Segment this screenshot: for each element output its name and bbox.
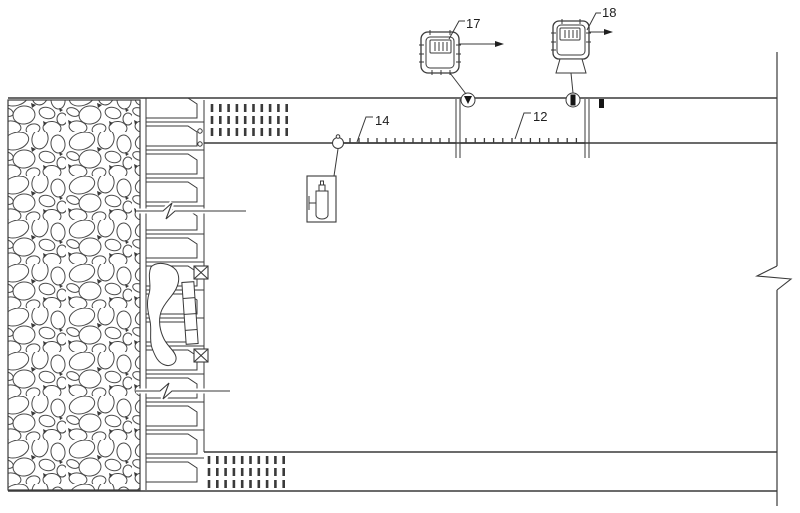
callout-18-label: 18 [602,5,616,20]
gas-cylinder-icon [309,181,328,219]
anchor-row-12 [460,138,585,143]
wireless-monitor-18 [551,13,613,93]
bolt-fence-top [212,104,287,138]
cross-brace-icon [194,349,208,362]
sensor-node-icon [333,135,344,149]
cross-brace-icon [194,266,208,279]
callout-17-label: 17 [466,16,480,31]
bolt-fence-bottom [209,456,284,488]
leader-line [449,21,465,39]
patent-figure: 17 18 14 12 [0,0,800,513]
probe-bar-icon [566,93,580,107]
anchor-row-14 [344,138,456,143]
device-base [556,59,586,73]
valve-triangle-icon [461,93,475,107]
device-display-icon [560,28,580,40]
figure-canvas: 17 18 14 12 [0,0,800,513]
connector-line [571,73,573,93]
callout-14-label: 14 [375,113,389,128]
arrow-icon [495,41,504,47]
leader-line [515,113,531,139]
gas-cylinder-box [307,149,338,222]
bolt-icon [198,129,202,133]
connector-line [450,73,466,94]
edge-break-icon [757,266,791,290]
callout-12-label: 12 [533,109,547,124]
bolt-icon [198,142,202,146]
marker-block-icon [599,99,604,108]
device-display-icon [430,40,451,53]
wireless-monitor-17 [419,21,504,94]
arrow-icon [604,29,613,35]
rock-rubble-region [8,100,140,490]
leader-line [334,149,338,176]
